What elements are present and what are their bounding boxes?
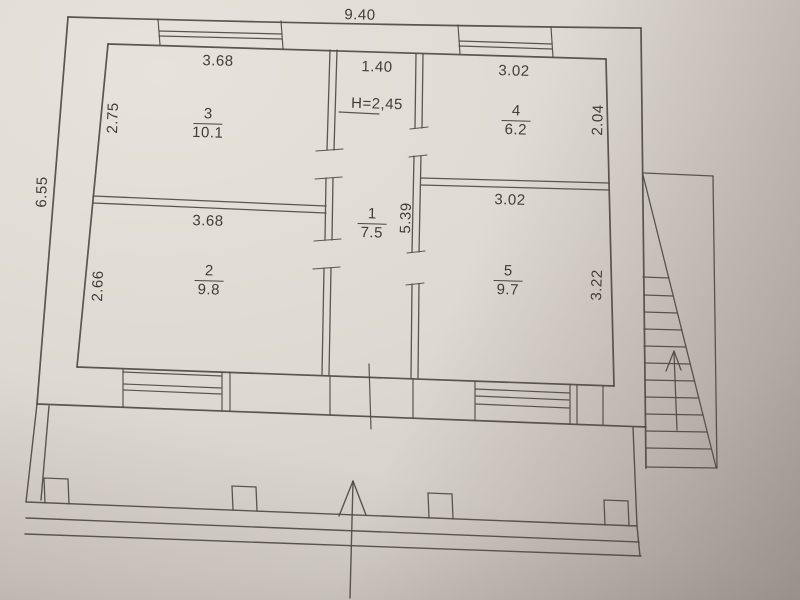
room-5-label: 5 9.7	[493, 263, 523, 299]
dim-overall-height: 6.55	[34, 176, 50, 208]
dim-room4-width: 3.02	[498, 63, 530, 79]
dim-overall-width: 9.40	[344, 7, 376, 23]
dim-room2-width: 3.68	[192, 213, 224, 229]
room-4-number: 4	[502, 103, 531, 122]
dim-room3-width: 3.68	[202, 53, 234, 69]
dim-corridor-width: 1.40	[361, 59, 393, 75]
room-1-label: 1 7.5	[357, 206, 387, 242]
room-3-area: 10.1	[192, 124, 224, 142]
dim-room2-height: 2.66	[90, 270, 106, 302]
room-4-label: 4 6.2	[501, 103, 531, 139]
room-2-label: 2 9.8	[194, 263, 224, 299]
dim-room3-height: 2.75	[105, 102, 121, 134]
room-2-area: 9.8	[197, 281, 220, 299]
room-3-label: 3 10.1	[192, 106, 224, 142]
dimension-labels: 9.40 6.55 3.68 1.40 3.02 H=2,45 2.75 2.0…	[0, 0, 800, 600]
room-3-number: 3	[194, 106, 223, 125]
room-2-number: 2	[195, 263, 224, 282]
room-5-number: 5	[494, 263, 523, 282]
room-5-area: 9.7	[496, 281, 519, 299]
dim-room5-height: 3.22	[589, 269, 605, 301]
dim-room4-height: 2.04	[590, 104, 606, 136]
dim-corridor-height: 5.39	[398, 202, 414, 234]
room-1-area: 7.5	[360, 224, 383, 242]
room-4-area: 6.2	[504, 121, 527, 139]
room-1-number: 1	[358, 206, 387, 225]
floorplan-photo: 9.40 6.55 3.68 1.40 3.02 H=2,45 2.75 2.0…	[0, 0, 800, 600]
ceiling-height-note: H=2,45	[351, 96, 403, 112]
dim-room5-width: 3.02	[494, 192, 526, 208]
